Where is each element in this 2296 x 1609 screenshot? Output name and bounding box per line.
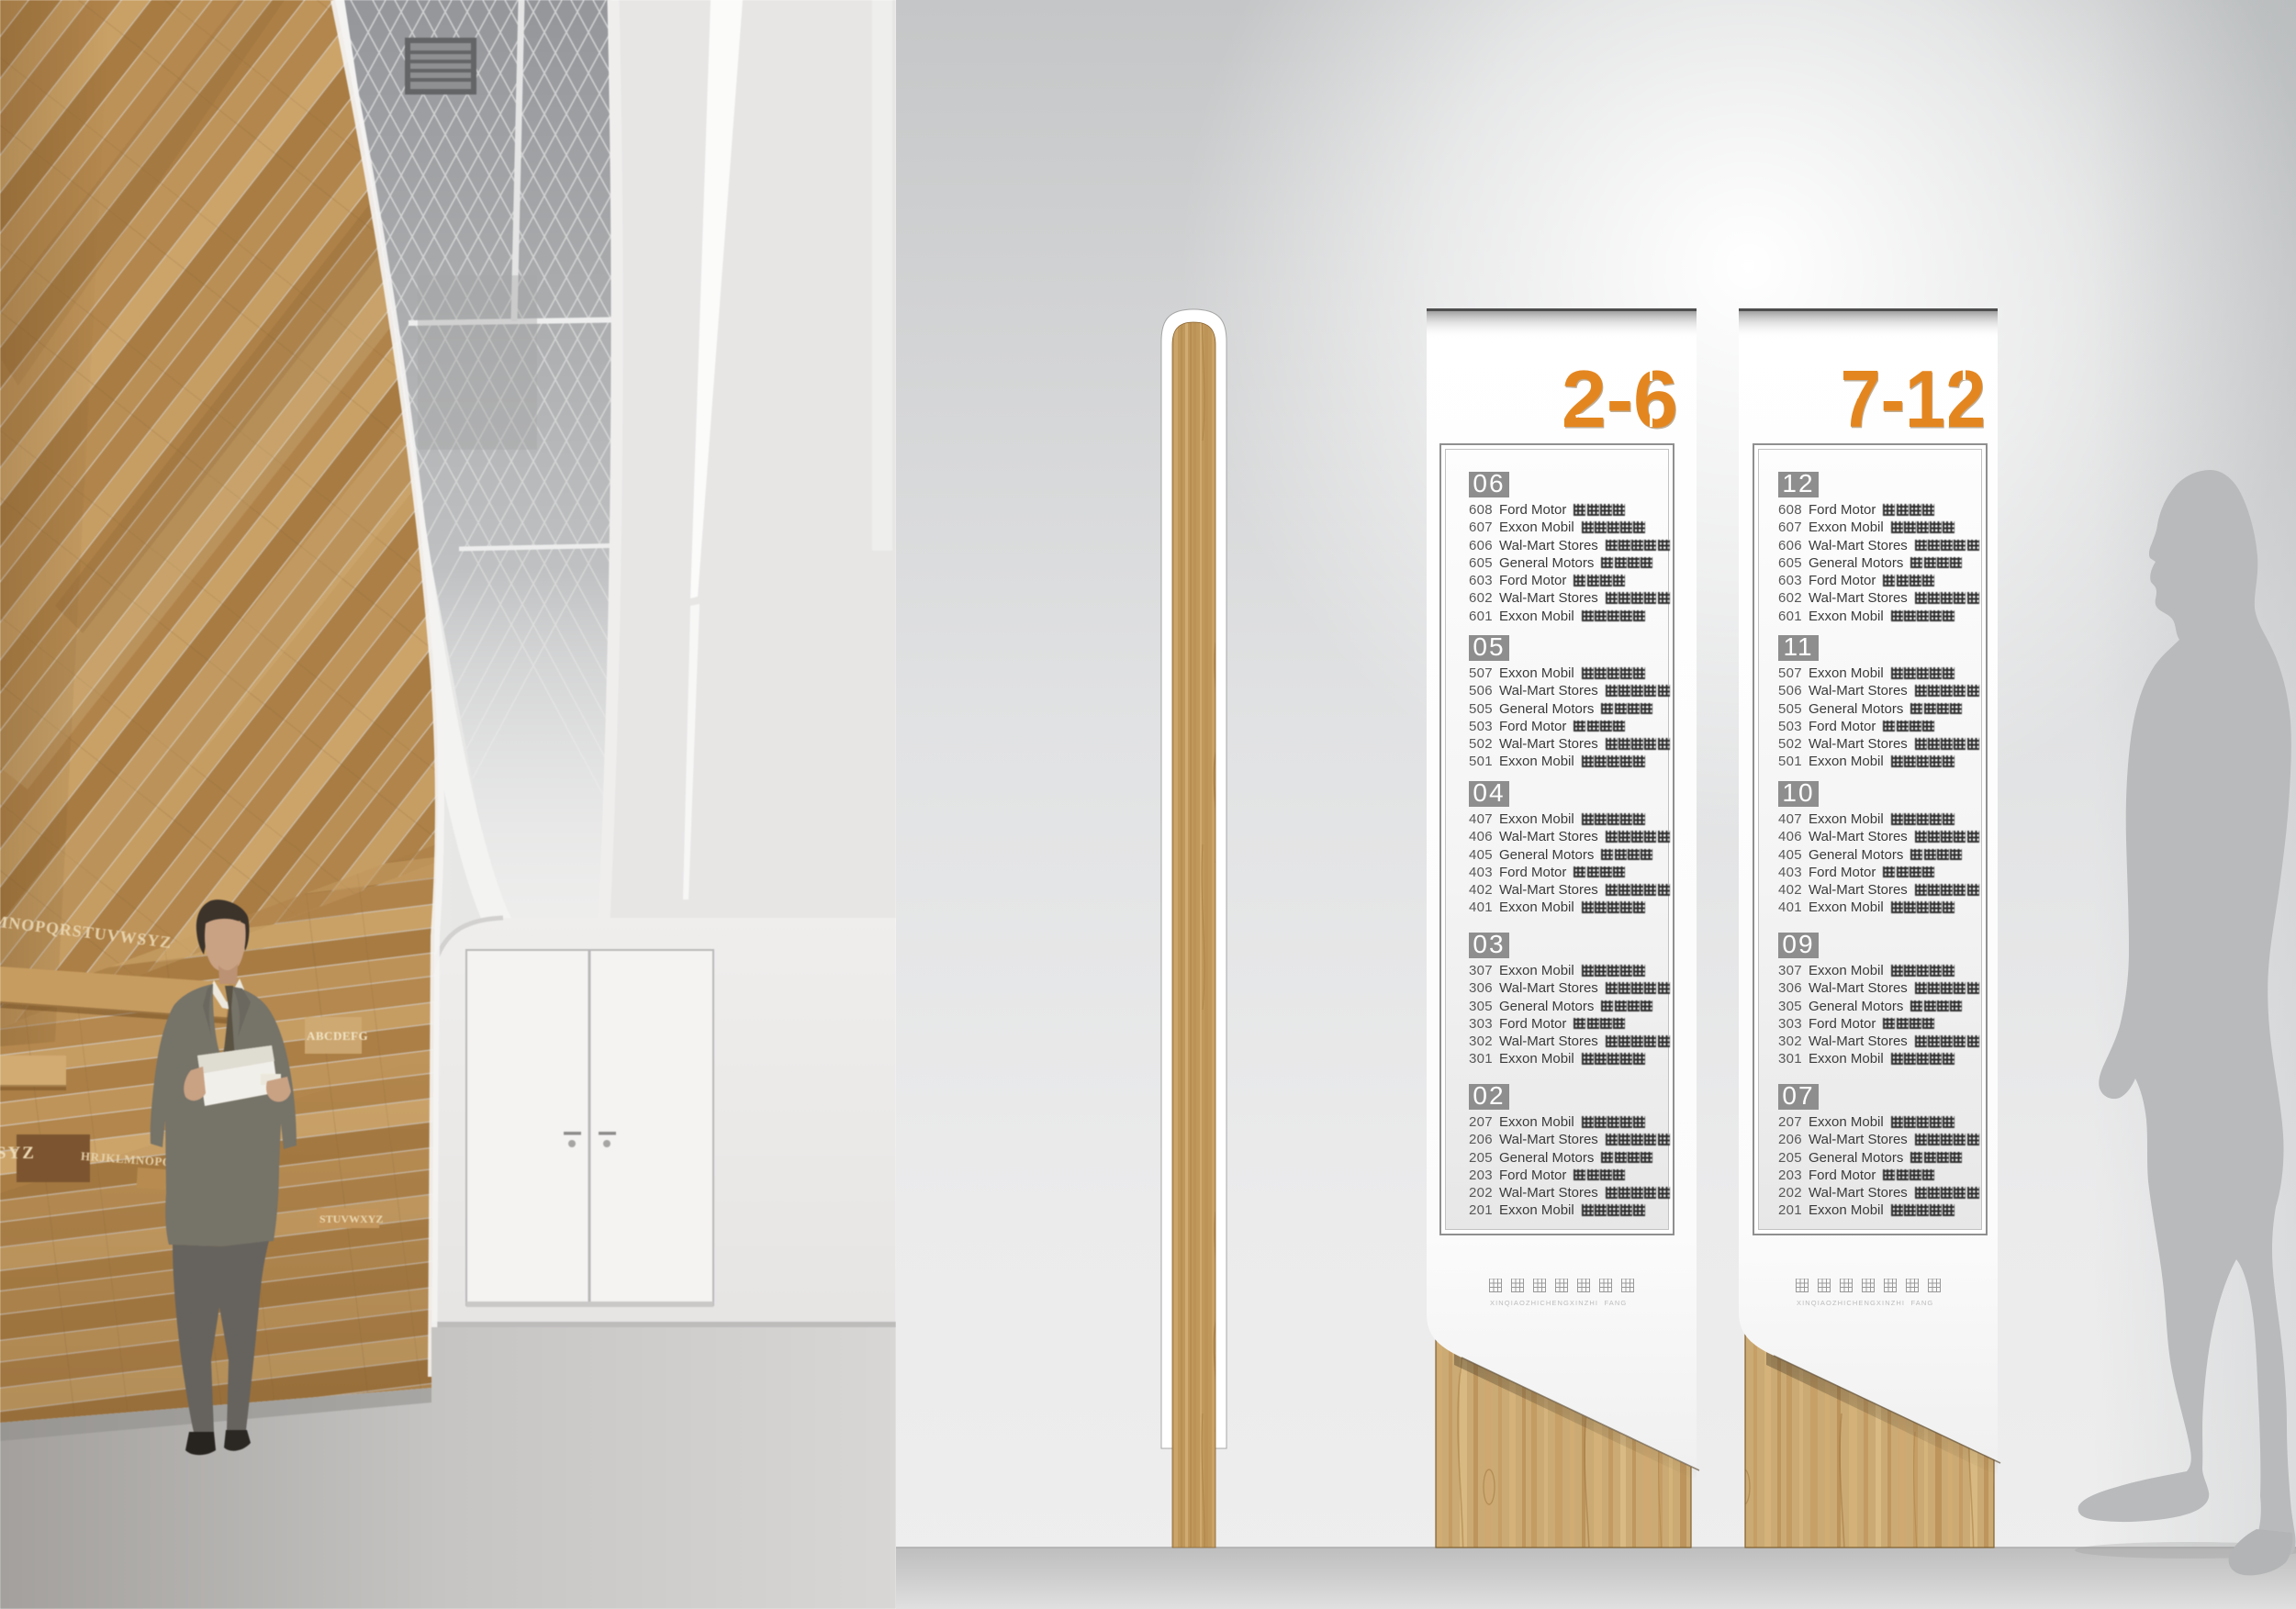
svg-text:STUVWXYZ: STUVWXYZ	[319, 1212, 383, 1225]
svg-text:SYZ: SYZ	[0, 1144, 36, 1163]
svg-text:ABCDEFG: ABCDEFG	[307, 1029, 368, 1043]
